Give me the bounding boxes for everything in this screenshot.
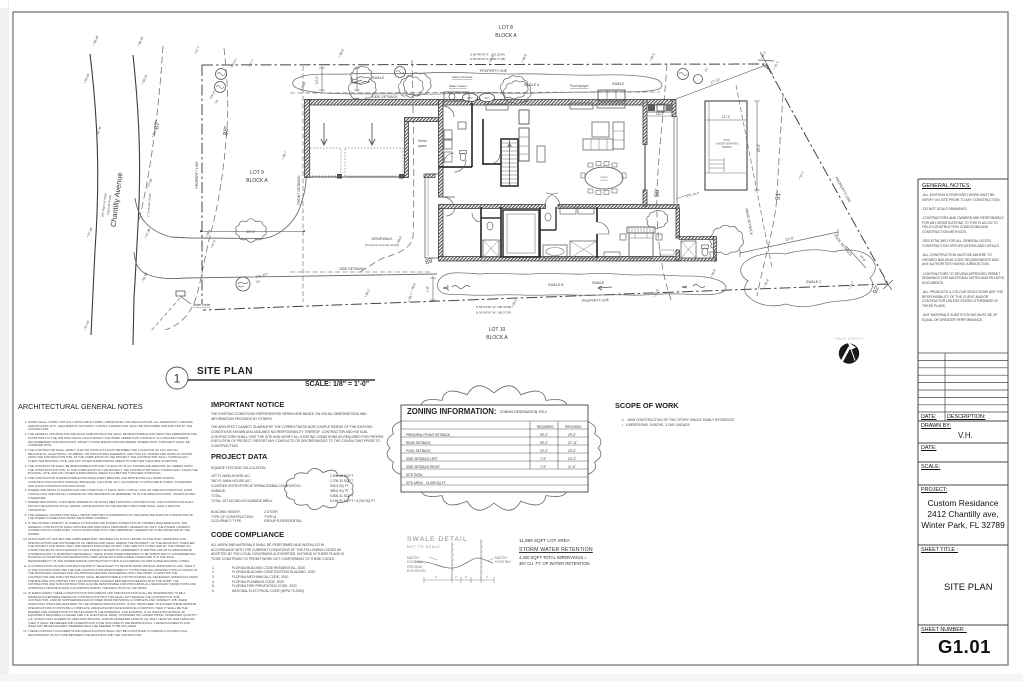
svg-text:+ 90.8': + 90.8' — [762, 278, 770, 288]
svg-text:+ 87.05': + 87.05' — [145, 177, 153, 189]
svg-text:+ 88.8': + 88.8' — [409, 282, 417, 292]
svg-text:11'-6": 11'-6" — [446, 284, 450, 291]
svg-text:ROOM: ROOM — [601, 180, 608, 182]
svg-text:POOL SETBACK: POOL SETBACK — [833, 234, 853, 258]
svg-text:+ 89.3': + 89.3' — [759, 50, 767, 60]
svg-text:2': 2' — [465, 575, 468, 579]
svg-text:SIDE SETBACK: SIDE SETBACK — [339, 267, 365, 271]
svg-text:Water heater: Water heater — [449, 84, 467, 88]
svg-text:PROPERTY LINE: PROPERTY LINE — [195, 161, 199, 189]
svg-text:N 59°40'54" W 180.57'(P): N 59°40'54" W 180.57'(P) — [476, 311, 511, 315]
svg-text:+ 86.56': + 86.56' — [82, 72, 90, 84]
svg-text:+ 89.5': + 89.5' — [510, 298, 518, 308]
svg-text:+ 88.8': + 88.8' — [520, 53, 528, 63]
svg-text:+ 86.77': + 86.77' — [150, 126, 158, 138]
svg-text:7'-6": 7'-6" — [350, 77, 354, 83]
svg-text:4': 4' — [435, 575, 438, 579]
svg-text:12'-1": 12'-1" — [722, 115, 731, 119]
svg-text:SIDE SETBACK: SIDE SETBACK — [372, 95, 398, 99]
svg-text:S 60°49'43" E 159.25'(P): S 60°49'43" E 159.25'(P) — [470, 53, 505, 57]
svg-text:BLOCK A: BLOCK A — [246, 178, 268, 184]
svg-text:+ 87.7': + 87.7' — [193, 45, 201, 55]
svg-text:SWALE: SWALE — [592, 281, 605, 285]
svg-text:90': 90' — [654, 188, 662, 197]
svg-text:(4"): (4") — [703, 67, 709, 73]
svg-text:FRONT SETBACK: FRONT SETBACK — [297, 175, 301, 205]
svg-text:N 59°34'36" W 180.45'(M): N 59°34'36" W 180.45'(M) — [476, 305, 511, 309]
svg-text:91': 91' — [775, 191, 783, 200]
svg-text:+ 88.8': + 88.8' — [299, 81, 307, 91]
svg-text:16'-3": 16'-3" — [656, 112, 664, 116]
svg-text:+ 87.9': + 87.9' — [209, 239, 217, 249]
svg-text:+ 87.08': + 87.08' — [143, 227, 151, 239]
svg-text:PROPERTY LINE: PROPERTY LINE — [834, 176, 852, 204]
svg-text:A/C: A/C — [484, 96, 490, 100]
svg-text:+ 87.7': + 87.7' — [247, 58, 255, 68]
svg-text:2': 2' — [486, 575, 489, 579]
svg-text:Water meter: Water meter — [193, 303, 211, 307]
svg-text:88": 88" — [222, 125, 231, 136]
svg-text:+ 87.43': + 87.43' — [82, 319, 90, 331]
svg-text:SWALE: SWALE — [612, 82, 625, 86]
svg-text:Dia: Dia — [255, 279, 261, 284]
svg-text:PROPERTY LINE: PROPERTY LINE — [480, 69, 508, 73]
svg-text:+ 89.2': + 89.2' — [363, 288, 371, 298]
svg-text:SWALE C: SWALE C — [806, 280, 822, 284]
svg-text:5'-3" 90.0': 5'-3" 90.0' — [686, 191, 700, 199]
svg-text:+ 88.7': + 88.7' — [280, 150, 288, 160]
svg-text:+ 89.3': + 89.3' — [648, 52, 656, 62]
svg-text:Pool equipm: Pool equipm — [570, 84, 589, 88]
svg-text:TRUE NORTH: TRUE NORTH — [835, 337, 864, 341]
svg-text:2': 2' — [455, 575, 458, 579]
svg-text:23'-0": 23'-0" — [785, 236, 795, 242]
svg-text:SWALE: SWALE — [372, 76, 385, 80]
svg-text:LOT 10: LOT 10 — [489, 327, 506, 333]
svg-text:Oak (4"): Oak (4") — [229, 58, 238, 69]
svg-text:+ 87.18': + 87.18' — [85, 226, 93, 238]
svg-text:7'-6": 7'-6" — [426, 286, 430, 292]
svg-text:Dia: Dia — [213, 98, 219, 104]
svg-text:Green: Green — [418, 139, 427, 143]
svg-text:+ 86.78': + 86.78' — [94, 125, 102, 137]
svg-text:(Pervious Grande Chips): (Pervious Grande Chips) — [365, 243, 399, 247]
svg-text:25'-0": 25'-0" — [757, 143, 761, 152]
svg-text:Oak (10"): Oak (10") — [255, 272, 268, 279]
svg-text:+ 91.1': + 91.1' — [772, 60, 780, 70]
svg-text:29'-0": 29'-0" — [246, 230, 256, 234]
svg-text:SWALE B: SWALE B — [548, 283, 564, 287]
svg-text:+ 91.1': + 91.1' — [797, 170, 805, 180]
svg-text:2' Concrete Gutter: 2' Concrete Gutter — [146, 193, 152, 218]
svg-text:REAR SETBACK: REAR SETBACK — [744, 208, 753, 236]
svg-text:BLOCK A: BLOCK A — [495, 33, 517, 39]
svg-text:+ 88.1': + 88.1' — [204, 228, 212, 238]
svg-text:+ 86.54': + 86.54' — [140, 73, 148, 85]
svg-text:LOT 9: LOT 9 — [250, 170, 264, 176]
svg-text:PERMIT): PERMIT) — [722, 146, 732, 149]
svg-text:+ 88.8': + 88.8' — [395, 235, 403, 245]
svg-text:+ 86.49': + 86.49' — [91, 34, 99, 46]
svg-text:BLOCK A: BLOCK A — [486, 335, 508, 341]
svg-text:+ 86.99': + 86.99' — [140, 271, 148, 283]
svg-text:space: space — [418, 144, 427, 148]
svg-text:+ 90.8': + 90.8' — [709, 268, 717, 278]
svg-text:+ 88.7': + 88.7' — [406, 292, 414, 302]
svg-text:+ 88.8': + 88.8' — [337, 48, 345, 58]
svg-text:+ 86.43': + 86.43' — [136, 35, 144, 47]
svg-text:92': 92' — [872, 284, 881, 294]
svg-text:PROPERTY LINE: PROPERTY LINE — [582, 298, 610, 303]
svg-text:DRIVEWALK: DRIVEWALK — [371, 237, 393, 241]
svg-text:LOT 8: LOT 8 — [499, 25, 513, 31]
svg-text:A/C: A/C — [467, 96, 473, 100]
svg-text:False windows: False windows — [452, 75, 473, 79]
svg-text:Oak (4"): Oak (4") — [208, 89, 217, 100]
svg-text:DINING: DINING — [600, 177, 608, 179]
svg-text:10'-0": 10'-0" — [315, 76, 319, 84]
svg-text:1: 1 — [174, 372, 181, 386]
